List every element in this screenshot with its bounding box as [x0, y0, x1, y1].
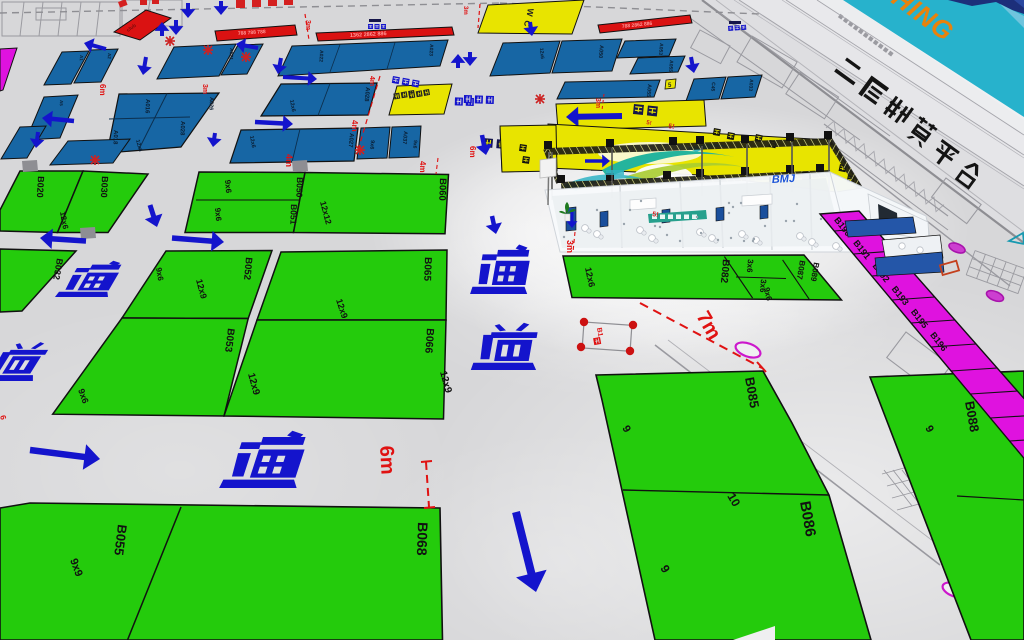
- svg-text:A022: A022: [318, 50, 324, 62]
- svg-text:A2: A2: [107, 53, 112, 59]
- svg-text:3m: 3m: [594, 98, 601, 108]
- svg-text:A5: A5: [59, 100, 64, 106]
- svg-text:9x6: 9x6: [368, 140, 375, 150]
- svg-text:3m: 3m: [201, 84, 208, 94]
- svg-text:4m: 4m: [350, 120, 359, 132]
- svg-text:C45: C45: [709, 82, 716, 92]
- svg-text:B082: B082: [718, 259, 731, 284]
- svg-text:A026: A026: [208, 97, 214, 110]
- svg-text:A023: A023: [428, 44, 434, 56]
- svg-text:A055: A055: [667, 60, 674, 73]
- svg-text:5!: 5!: [668, 123, 675, 131]
- svg-text:B051: B051: [288, 204, 299, 225]
- svg-text:B068: B068: [414, 522, 431, 556]
- svg-text:9x6: 9x6: [213, 207, 223, 222]
- svg-text:A028: A028: [178, 121, 185, 136]
- svg-text:A053: A053: [657, 43, 664, 56]
- svg-text:A055: A055: [645, 84, 652, 98]
- svg-text:9x6: 9x6: [223, 179, 233, 194]
- svg-text:5!: 5!: [652, 211, 659, 219]
- svg-text:B050: B050: [294, 177, 305, 198]
- svg-text:A037: A037: [401, 131, 408, 145]
- svg-text:B065: B065: [421, 257, 433, 282]
- svg-text:B030: B030: [99, 176, 110, 198]
- svg-text:B052: B052: [241, 257, 254, 281]
- svg-text:B060: B060: [436, 178, 448, 201]
- svg-text:6m: 6m: [98, 84, 107, 96]
- svg-text:B066: B066: [422, 328, 436, 354]
- svg-text:BMJ: BMJ: [772, 173, 797, 186]
- svg-text:6m: 6m: [375, 445, 398, 475]
- svg-text:A033: A033: [747, 79, 754, 92]
- svg-text:9x6: 9x6: [411, 140, 418, 149]
- svg-text:4m: 4m: [418, 161, 427, 173]
- svg-text:12x6: 12x6: [538, 48, 545, 60]
- svg-text:A050: A050: [597, 45, 604, 59]
- svg-text:A021: A021: [228, 48, 234, 60]
- svg-text:A018: A018: [111, 130, 118, 145]
- svg-text:3x6: 3x6: [745, 259, 755, 274]
- svg-text:A016: A016: [143, 99, 150, 114]
- svg-text:A1: A1: [79, 55, 84, 61]
- svg-text:4m: 4m: [368, 76, 375, 86]
- svg-text:3m: 3m: [462, 6, 468, 15]
- svg-text:B020: B020: [35, 176, 46, 198]
- svg-text:6m: 6m: [468, 146, 477, 158]
